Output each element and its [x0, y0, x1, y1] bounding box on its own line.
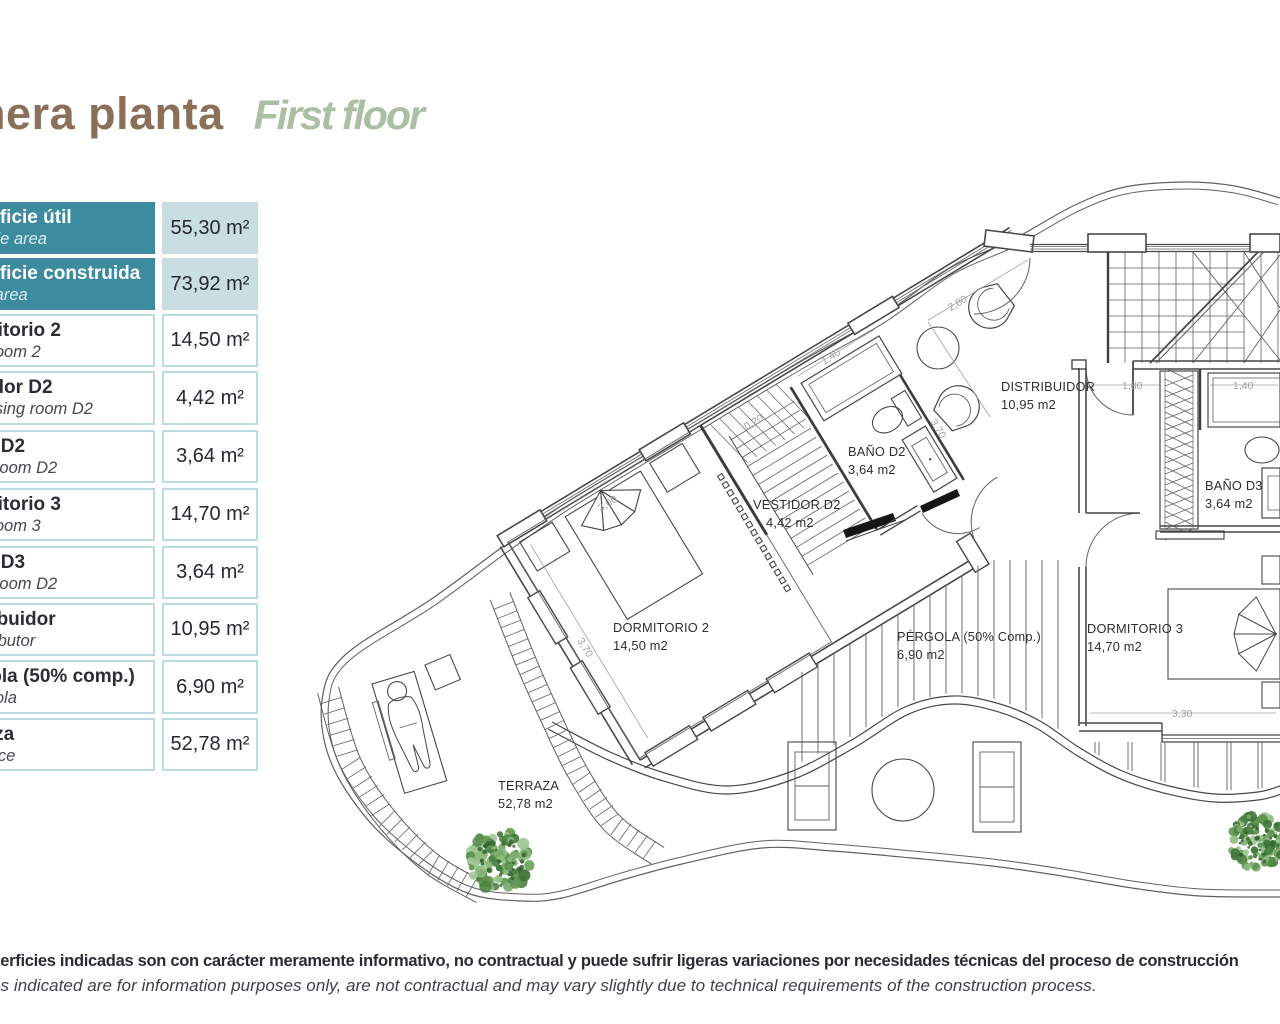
svg-text:3,30: 3,30 — [1172, 708, 1193, 720]
svg-text:TERRAZA: TERRAZA — [498, 778, 559, 793]
svg-text:3,64 m2: 3,64 m2 — [848, 462, 896, 477]
svg-text:0,20: 0,20 — [742, 412, 766, 433]
svg-text:BAÑO D3: BAÑO D3 — [1205, 478, 1263, 493]
svg-text:3,64 m2: 3,64 m2 — [1205, 496, 1253, 511]
svg-text:DORMITORIO 2: DORMITORIO 2 — [613, 620, 709, 635]
svg-text:BAÑO D2: BAÑO D2 — [848, 444, 906, 459]
svg-text:1,40: 1,40 — [1233, 380, 1254, 392]
svg-text:PÉRGOLA (50% Comp.): PÉRGOLA (50% Comp.) — [897, 629, 1041, 644]
svg-text:1,80: 1,80 — [1122, 380, 1143, 392]
svg-text:DISTRIBUIDOR: DISTRIBUIDOR — [1001, 379, 1095, 394]
svg-text:2,80: 2,80 — [946, 293, 970, 314]
svg-text:4,42 m2: 4,42 m2 — [766, 515, 814, 530]
svg-text:VESTIDOR D2: VESTIDOR D2 — [753, 497, 841, 512]
svg-text:14,50 m2: 14,50 m2 — [613, 638, 668, 653]
svg-text:14,70 m2: 14,70 m2 — [1087, 639, 1142, 654]
svg-text:DORMITORIO 3: DORMITORIO 3 — [1087, 621, 1183, 636]
svg-text:3,70: 3,70 — [927, 417, 948, 441]
svg-text:6,90 m2: 6,90 m2 — [897, 647, 945, 662]
svg-text:10,95 m2: 10,95 m2 — [1001, 397, 1056, 412]
svg-text:52,78 m2: 52,78 m2 — [498, 796, 553, 811]
